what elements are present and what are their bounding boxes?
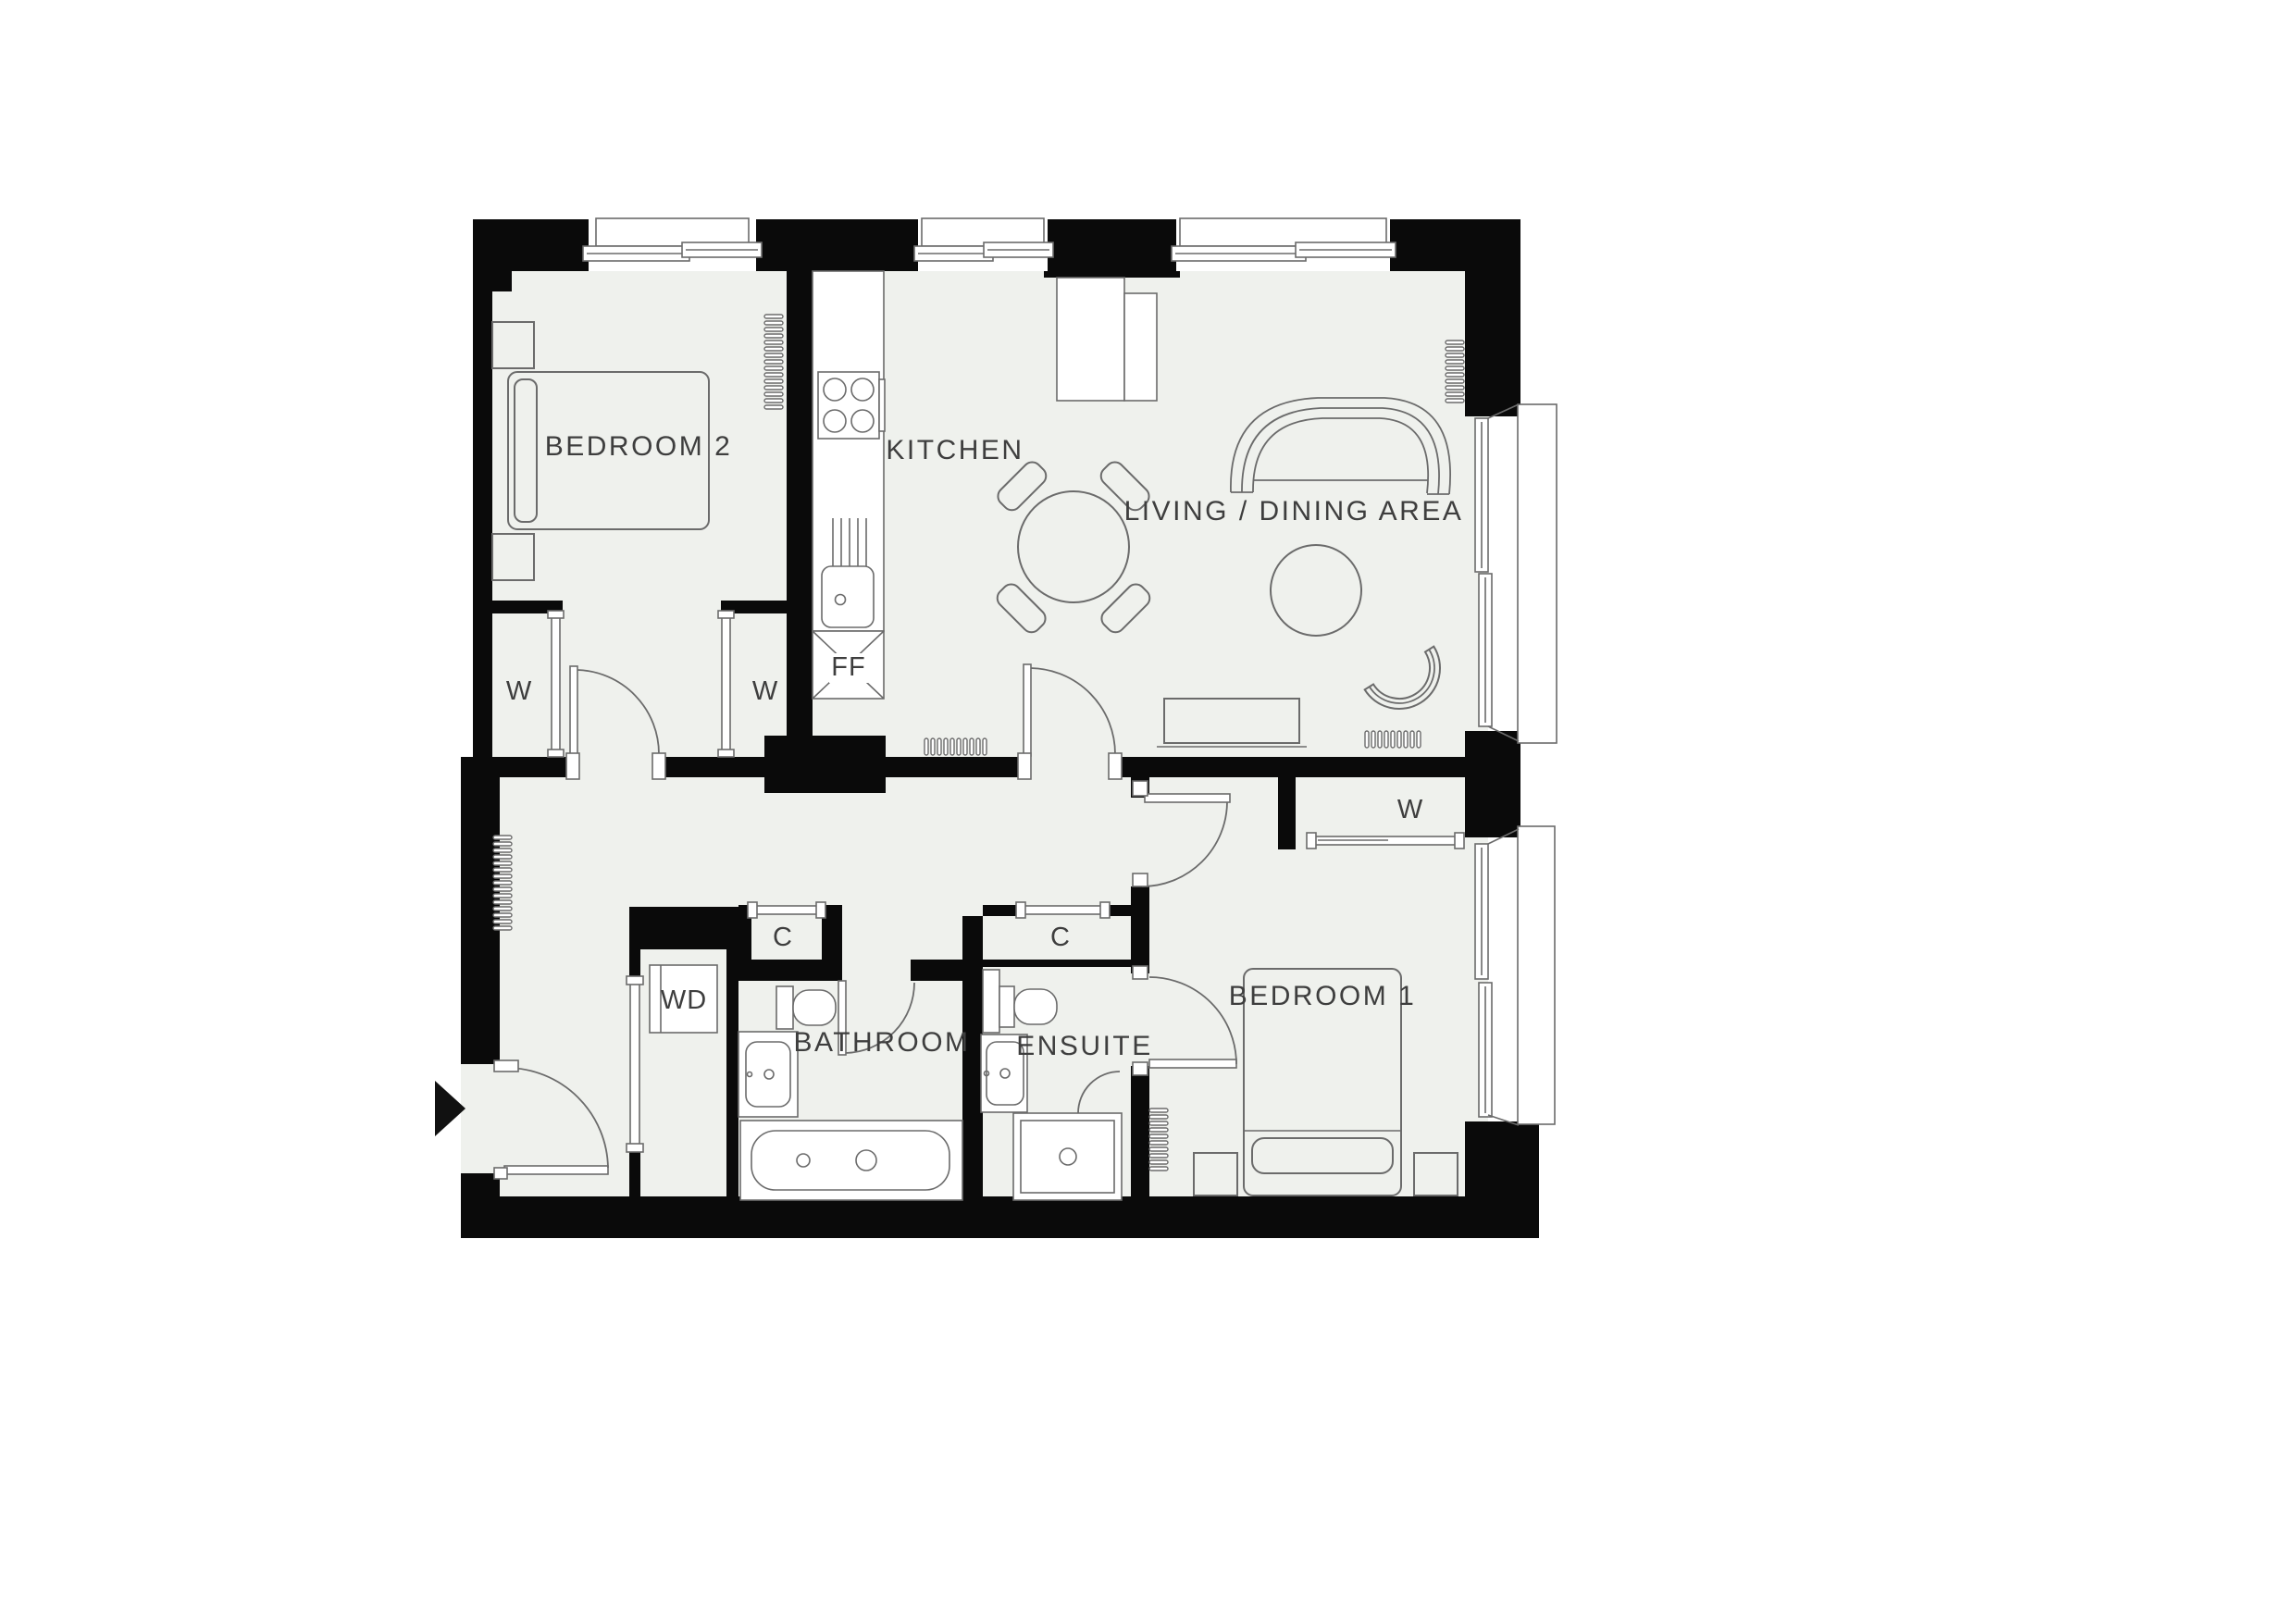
kitchen-tall-units (1057, 278, 1157, 401)
room-label-ensuite: ENSUITE (1016, 1031, 1153, 1061)
bedroom2-headboard (515, 379, 537, 522)
room-label-bedroom2: BEDROOM 2 (545, 431, 733, 462)
dining-table (1018, 491, 1129, 602)
coffee-table (1271, 545, 1361, 636)
label-wardrobe-right: W (752, 676, 778, 706)
room-label-kitchen: KITCHEN (886, 435, 1024, 465)
ensuite-shelf (983, 970, 999, 1033)
radiator-bedroom2 (764, 315, 783, 409)
living-bay-window-icon (1475, 404, 1557, 743)
room-label-bathroom: BATHROOM (793, 1027, 970, 1058)
label-cupboard-ensuite: C (1050, 923, 1071, 952)
bedroom1-pillow (1252, 1138, 1393, 1173)
bathtub-icon (740, 1121, 962, 1200)
bedroom1-bay-window-icon (1475, 826, 1555, 1125)
bedroom1-nightstand-right (1414, 1153, 1458, 1196)
living-window-icon (1172, 216, 1396, 271)
kitchen-window-icon (914, 216, 1053, 271)
radiator-living-wall (1365, 731, 1421, 748)
label-washer-dryer: WD (661, 985, 707, 1015)
bedroom2-window-icon (583, 216, 762, 271)
bedroom2-nightstand-bottom (492, 534, 534, 580)
sideboard (1157, 699, 1307, 747)
bathroom-sink-icon (738, 1032, 798, 1117)
radiator-hall (493, 836, 512, 930)
label-fridge-freezer: FF (831, 652, 865, 682)
label-wardrobe-left: W (506, 676, 532, 706)
kitchen-sink-icon (822, 566, 874, 627)
label-wardrobe-bedroom1: W (1397, 795, 1423, 824)
floor-plan: BEDROOM 2 KITCHEN LIVING / DINING AREA B… (0, 0, 2296, 1623)
label-cupboard-bathroom: C (773, 923, 793, 952)
hob-icon (818, 372, 885, 439)
bathroom-toilet-icon (776, 986, 836, 1029)
room-label-living: LIVING / DINING AREA (1124, 496, 1464, 527)
bedroom1-nightstand-left (1194, 1153, 1237, 1196)
bedroom2-nightstand-top (492, 322, 534, 368)
room-label-bedroom1: BEDROOM 1 (1229, 981, 1417, 1011)
ensuite-toilet-icon (999, 986, 1057, 1027)
